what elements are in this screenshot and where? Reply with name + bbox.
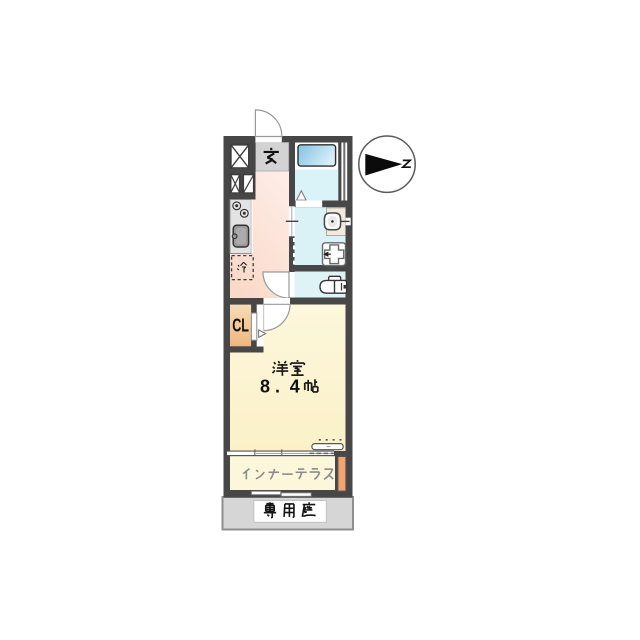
svg-text:CL: CL: [232, 316, 249, 336]
svg-text:.: .: [275, 376, 280, 396]
svg-text:8: 8: [260, 376, 270, 396]
svg-text:4: 4: [290, 376, 300, 396]
